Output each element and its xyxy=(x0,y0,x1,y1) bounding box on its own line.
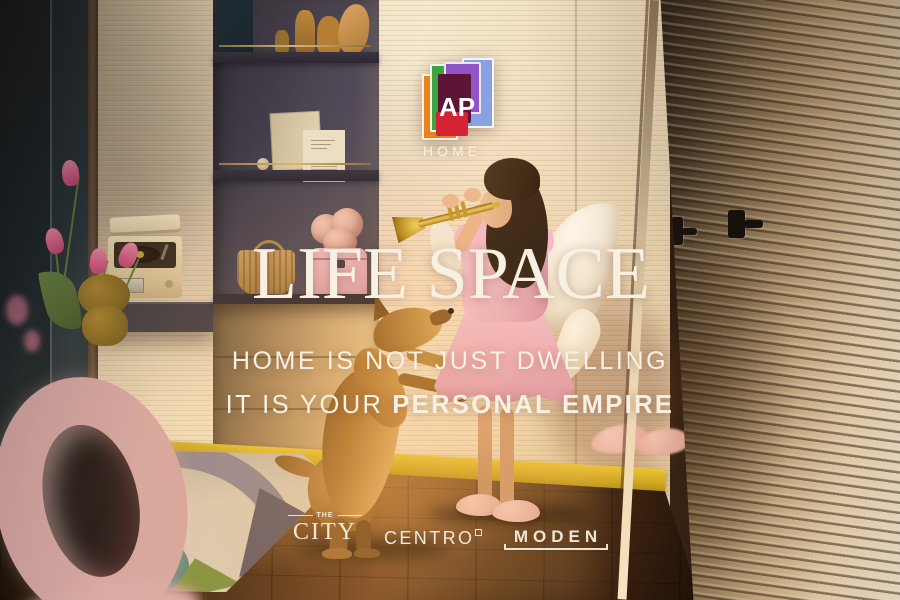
girl-hand xyxy=(442,194,459,208)
tagline-line1: HOME IS NOT JUST DWELLING xyxy=(0,347,900,376)
tulip-flower xyxy=(43,226,66,255)
trumpet-mouthpiece xyxy=(492,202,501,209)
angel-wing-girl xyxy=(398,158,623,526)
tagline-line2-emphasis: PERSONAL EMPIRE xyxy=(392,391,674,419)
shelf-board xyxy=(213,170,379,181)
partner-logo-the-city: THE CITY xyxy=(288,512,362,545)
tulip-flower xyxy=(116,240,142,270)
brass-rail xyxy=(219,163,371,165)
tulip-bouquet xyxy=(14,148,169,353)
small-vase xyxy=(275,30,289,53)
rule-line xyxy=(288,515,313,516)
girl-leg xyxy=(478,406,492,508)
centro-name: CENTRO xyxy=(384,528,474,548)
door-handle-stem xyxy=(682,228,697,235)
ap-logo: AP xyxy=(416,56,492,142)
the-city-pre: THE xyxy=(317,512,334,519)
tulip-flower xyxy=(89,247,108,274)
rule-line xyxy=(338,515,363,516)
door-handle xyxy=(728,210,745,238)
wood-paddle-decor xyxy=(336,2,373,56)
book-text-line xyxy=(311,140,335,141)
logo-wordmark: HOME xyxy=(402,143,502,159)
tulip-flower xyxy=(61,159,81,187)
dog-foot xyxy=(322,548,352,559)
the-city-topline: THE xyxy=(288,512,362,519)
centro-square-icon xyxy=(475,529,482,536)
stone-vase-base xyxy=(82,306,128,346)
fluted-wardrobe xyxy=(648,0,900,600)
tagline-line2: IT IS YOURPERSONAL EMPIRE xyxy=(0,391,900,420)
girl-hand xyxy=(464,188,481,202)
brass-rail xyxy=(219,45,371,47)
moden-underline xyxy=(504,548,608,550)
headline: LIFE SPACE xyxy=(241,237,661,311)
partner-logo-moden: MODEN xyxy=(506,527,610,547)
tulip-stem xyxy=(62,176,80,287)
shelf-board xyxy=(213,52,379,63)
book-text-line xyxy=(311,144,331,145)
partner-logo-centro: CENTRO xyxy=(384,528,476,549)
the-city-name: CITY xyxy=(288,519,362,545)
plush-slipper xyxy=(492,500,540,522)
dog-foot xyxy=(354,548,380,558)
book-text-line xyxy=(311,148,327,149)
girl-leg xyxy=(500,408,514,508)
ad-poster: AP HOME LIFE SPACE HOME IS NOT JUST DWEL… xyxy=(0,0,900,600)
ceramic-vase xyxy=(295,10,315,54)
logo-monogram: AP xyxy=(434,94,480,120)
door-handle-stem xyxy=(744,220,763,228)
tagline-line2-prefix: IT IS YOUR xyxy=(226,391,384,419)
